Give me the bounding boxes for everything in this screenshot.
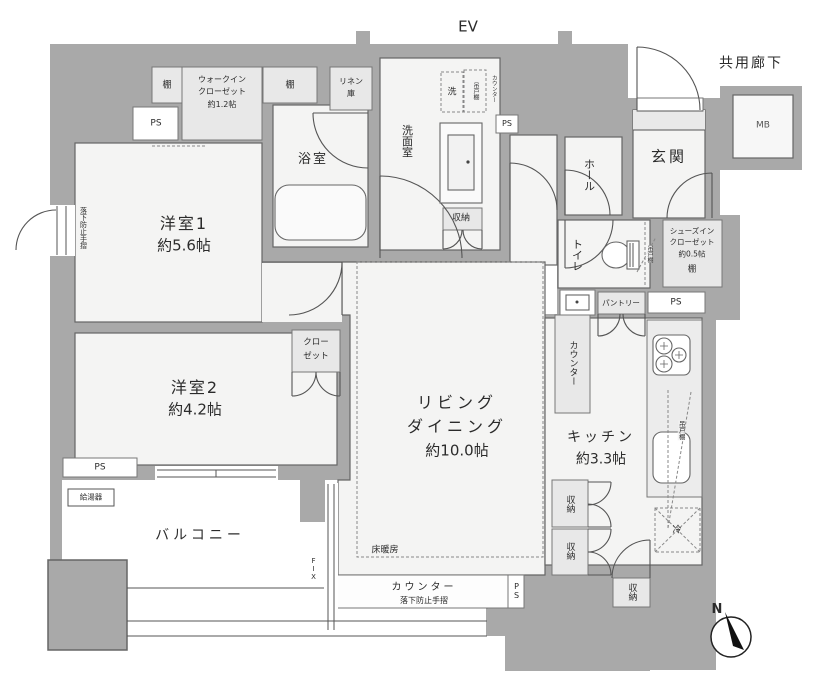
ev-shaft-stub	[558, 31, 572, 44]
label-wic-2: クローゼット	[198, 87, 246, 97]
label-shoe-closet-shelf: 棚	[688, 265, 697, 276]
label-hanging-cabinet-washroom: 吊戸棚	[472, 82, 478, 100]
label-water-heater: 給湯器	[80, 492, 103, 501]
room1-window-opening	[50, 205, 75, 256]
label-fridge: 冷	[672, 525, 681, 536]
label-hanging-cabinet-toilet: 吊戸棚	[646, 245, 652, 263]
label-ps-left: PS	[94, 462, 105, 473]
ev-shaft-stub	[356, 31, 370, 44]
label-washroom: 洗面室	[402, 125, 413, 158]
label-closet-1: クロー	[303, 338, 329, 349]
label-linen-1: リネン	[339, 77, 363, 87]
label-north: N	[712, 602, 723, 618]
label-closet-2: ゼット	[303, 352, 329, 363]
label-ps-washroom: PS	[502, 119, 512, 129]
label-counter-ld: カウンター	[392, 582, 457, 595]
label-mb: MB	[756, 120, 770, 131]
label-room1-size: 約5.6帖	[157, 237, 211, 256]
label-shoe-closet-2: クローゼット	[670, 237, 715, 246]
label-shelf-1: 棚	[162, 80, 171, 91]
corridor-nook-floor	[510, 135, 557, 265]
label-shoe-closet-1: シューズイン	[670, 226, 715, 235]
label-living-1: リビング	[417, 393, 497, 413]
genkan-tile	[633, 110, 705, 130]
label-ps-bottom: PS	[512, 582, 520, 600]
label-storage-bottom: 収納	[627, 583, 636, 601]
label-kitchen-name: キッチン	[567, 429, 635, 447]
label-toilet: トイレ	[572, 239, 583, 272]
label-living-size: 約10.0帖	[425, 442, 488, 461]
label-room2-size: 約4.2帖	[168, 401, 222, 420]
label-storage-washroom: 収納	[452, 213, 470, 224]
label-hall: ホール	[584, 159, 595, 192]
label-linen-2: 庫	[347, 89, 355, 99]
balcony-pillar	[48, 560, 127, 650]
vanity-knob	[466, 160, 469, 163]
label-counter-washroom: カウンター	[490, 75, 496, 103]
bathtub	[275, 185, 366, 240]
label-ps-topleft: PS	[150, 118, 161, 129]
label-floor-heating: 床暖房	[371, 545, 398, 556]
toilet-bowl	[602, 242, 630, 268]
label-kitchen-size: 約3.3帖	[576, 451, 626, 469]
label-balcony: バルコニー	[155, 527, 245, 545]
label-handrail-ld: 落下防止手摺	[400, 596, 448, 606]
label-washer: 洗	[447, 87, 456, 98]
label-ev: EV	[458, 18, 478, 37]
label-hanging-cabinet-kitchen: 吊戸棚	[678, 420, 685, 440]
label-counter-kitchen: カウンター	[568, 341, 577, 386]
label-wic-1: ウォークイン	[198, 75, 246, 85]
floor-plan: EV 共用廊下 MB 玄関 ホール トイレ シューズイン クローゼット 約0.5…	[0, 0, 828, 689]
label-storage-kitchen-1: 収納	[565, 495, 574, 513]
label-shelf-2: 棚	[285, 80, 294, 91]
label-room1-name: 洋室1	[160, 214, 208, 234]
vanity-door	[448, 135, 474, 190]
north-arrow	[711, 612, 751, 657]
label-genkan: 玄関	[651, 148, 687, 167]
label-ps-right: PS	[670, 297, 681, 308]
label-shoe-closet-size: 約0.5帖	[679, 249, 706, 258]
label-corridor: 共用廊下	[719, 55, 783, 73]
label-bath: 浴室	[298, 152, 328, 168]
label-fix: FIX	[310, 557, 317, 581]
label-handrail-left: 落下防止手摺	[80, 207, 87, 249]
label-room2-name: 洋室2	[171, 378, 219, 398]
basin-drain	[576, 301, 579, 304]
label-wic-size: 約1.2帖	[208, 100, 237, 110]
label-pantry: パントリー	[602, 298, 640, 307]
entrance-porch	[637, 98, 703, 111]
label-living-2: ダイニング	[407, 417, 507, 437]
fix-window-opening	[325, 483, 338, 631]
label-storage-kitchen-2: 収納	[565, 542, 574, 560]
